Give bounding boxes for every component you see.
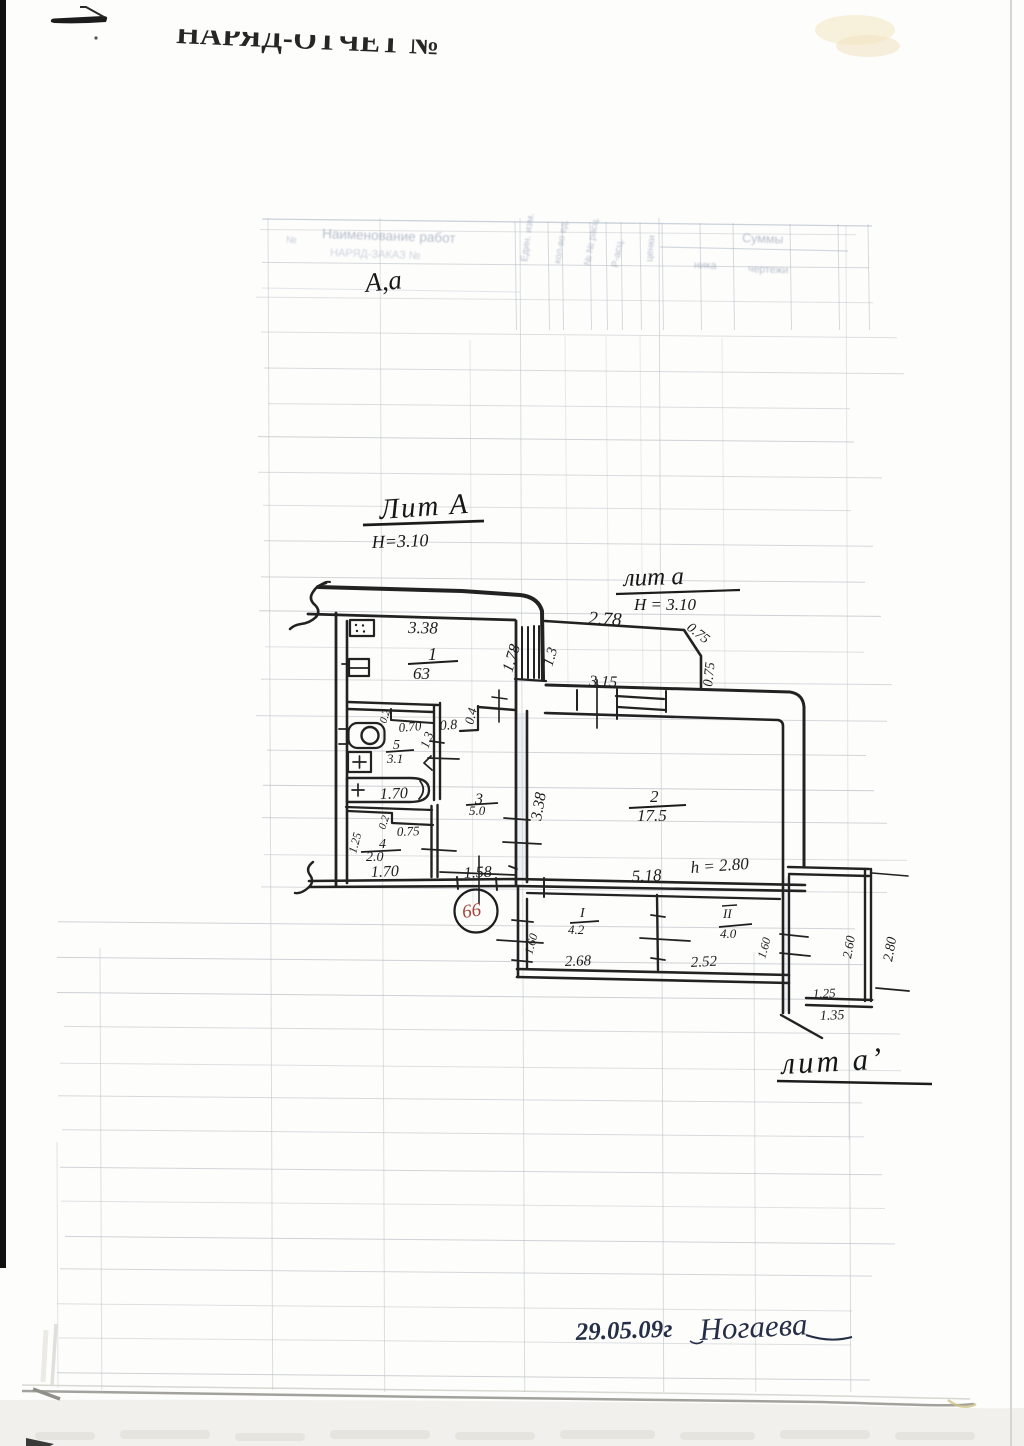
svg-text:1.25: 1.25	[813, 985, 837, 1001]
svg-text:0.70: 0.70	[398, 718, 422, 735]
svg-text:Н = 3.10: Н = 3.10	[633, 595, 696, 614]
svg-text:0.75: 0.75	[701, 661, 718, 687]
svg-text:1: 1	[428, 644, 437, 664]
svg-text:1.70: 1.70	[371, 863, 400, 881]
svg-text:Н=3.10: Н=3.10	[370, 530, 428, 552]
svg-text:1.35: 1.35	[820, 1008, 845, 1024]
svg-text:0.75: 0.75	[397, 823, 421, 839]
svg-text:3.1: 3.1	[386, 751, 403, 766]
svg-text:2.52: 2.52	[690, 954, 718, 971]
svg-text:лит а: лит а	[621, 563, 684, 592]
svg-text:чертежи: чертежи	[748, 263, 789, 276]
svg-text:4.2: 4.2	[568, 922, 585, 937]
svg-text:63: 63	[413, 664, 430, 683]
svg-text:Суммы: Суммы	[742, 231, 784, 246]
svg-text:II: II	[722, 906, 732, 921]
svg-text:2.68: 2.68	[565, 953, 592, 970]
svg-text:Ногаева: Ногаева	[698, 1306, 809, 1347]
svg-text:5.0: 5.0	[469, 803, 486, 818]
svg-text:5.18: 5.18	[631, 865, 662, 886]
svg-text:лит аʼ: лит аʼ	[779, 1041, 886, 1081]
svg-text:4.0: 4.0	[720, 926, 737, 941]
svg-text:1.58: 1.58	[463, 864, 492, 882]
svg-text:1.70: 1.70	[380, 785, 409, 803]
svg-text:3.15: 3.15	[588, 673, 618, 691]
svg-text:А,а: А,а	[362, 264, 404, 298]
svg-text:2: 2	[650, 787, 659, 806]
svg-text:ника: ника	[694, 259, 717, 272]
svg-text:№: №	[286, 235, 297, 246]
svg-text:66: 66	[461, 899, 483, 923]
svg-text:Лит А: Лит А	[377, 488, 470, 526]
svg-text:29.05.09г: 29.05.09г	[574, 1316, 673, 1346]
svg-text:2.78: 2.78	[588, 608, 623, 631]
svg-text:0.8: 0.8	[439, 718, 458, 734]
svg-text:17.5: 17.5	[637, 806, 667, 825]
svg-text:3.38: 3.38	[407, 618, 439, 638]
